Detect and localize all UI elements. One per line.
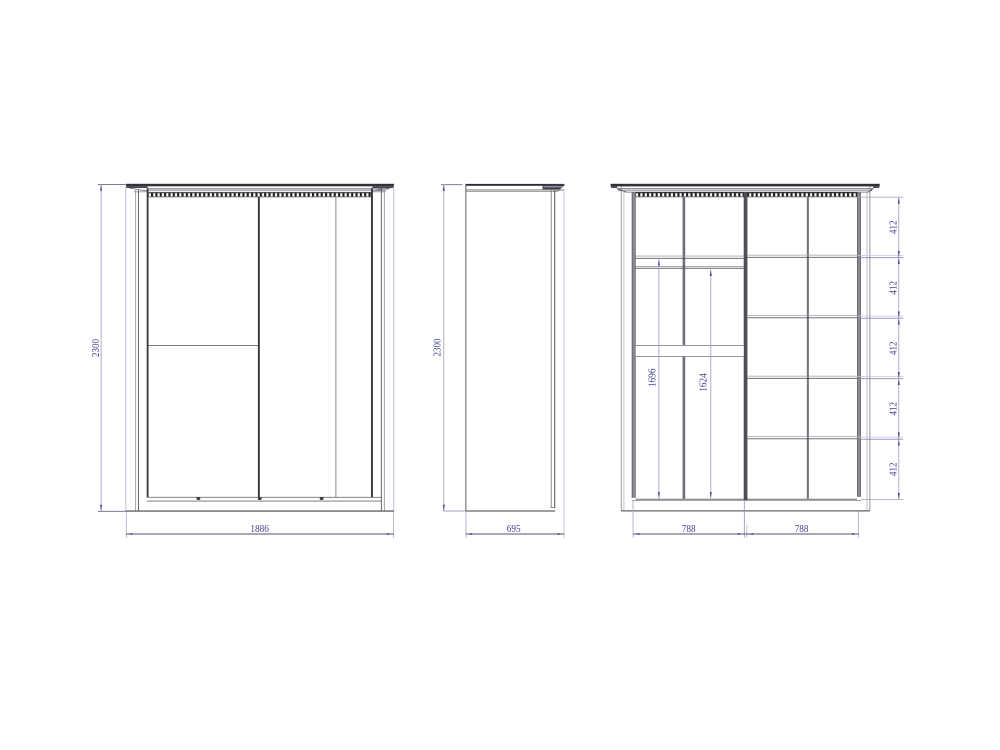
svg-text:2300: 2300 <box>91 339 102 357</box>
svg-text:695: 695 <box>507 524 521 535</box>
svg-text:1886: 1886 <box>250 524 269 535</box>
svg-text:412: 412 <box>888 341 899 355</box>
svg-text:412: 412 <box>888 402 899 416</box>
svg-text:412: 412 <box>888 220 899 234</box>
svg-text:1624: 1624 <box>699 373 710 392</box>
svg-text:788: 788 <box>795 524 809 535</box>
svg-text:412: 412 <box>888 281 899 295</box>
svg-text:2300: 2300 <box>433 339 444 357</box>
svg-text:1696: 1696 <box>648 369 659 388</box>
svg-text:412: 412 <box>888 462 899 476</box>
svg-text:788: 788 <box>682 524 696 535</box>
